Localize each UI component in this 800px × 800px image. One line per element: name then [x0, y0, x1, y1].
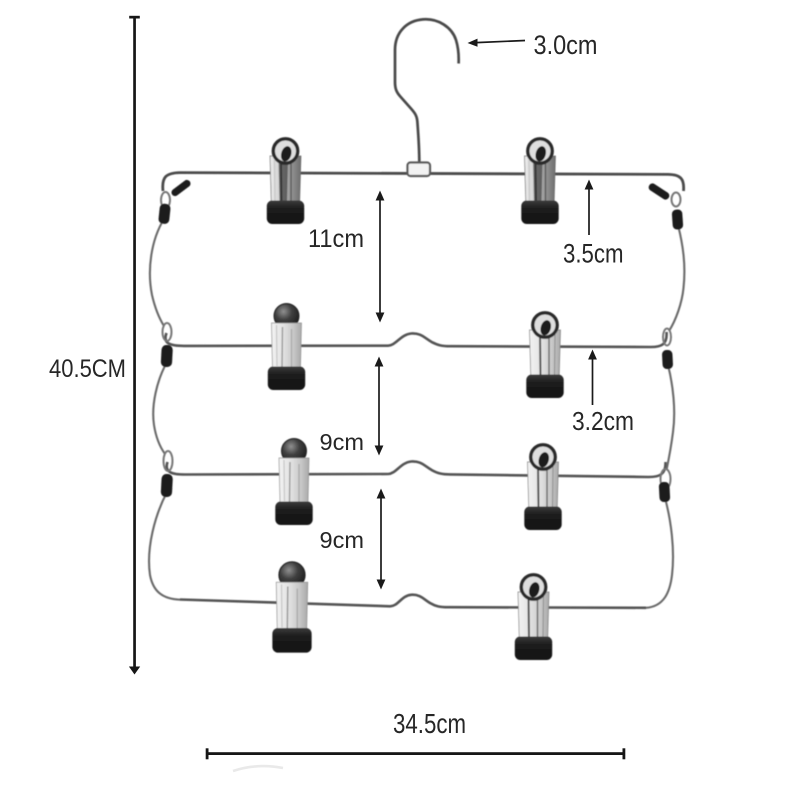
svg-text:34.5cm: 34.5cm — [393, 708, 466, 739]
svg-text:9cm: 9cm — [320, 527, 365, 553]
svg-text:3.2cm: 3.2cm — [572, 408, 634, 436]
svg-text:40.5CM: 40.5CM — [49, 355, 126, 383]
svg-text:3.0cm: 3.0cm — [534, 30, 598, 60]
svg-text:9cm: 9cm — [320, 429, 365, 455]
svg-text:3.5cm: 3.5cm — [563, 238, 624, 268]
svg-text:11cm: 11cm — [308, 226, 364, 253]
